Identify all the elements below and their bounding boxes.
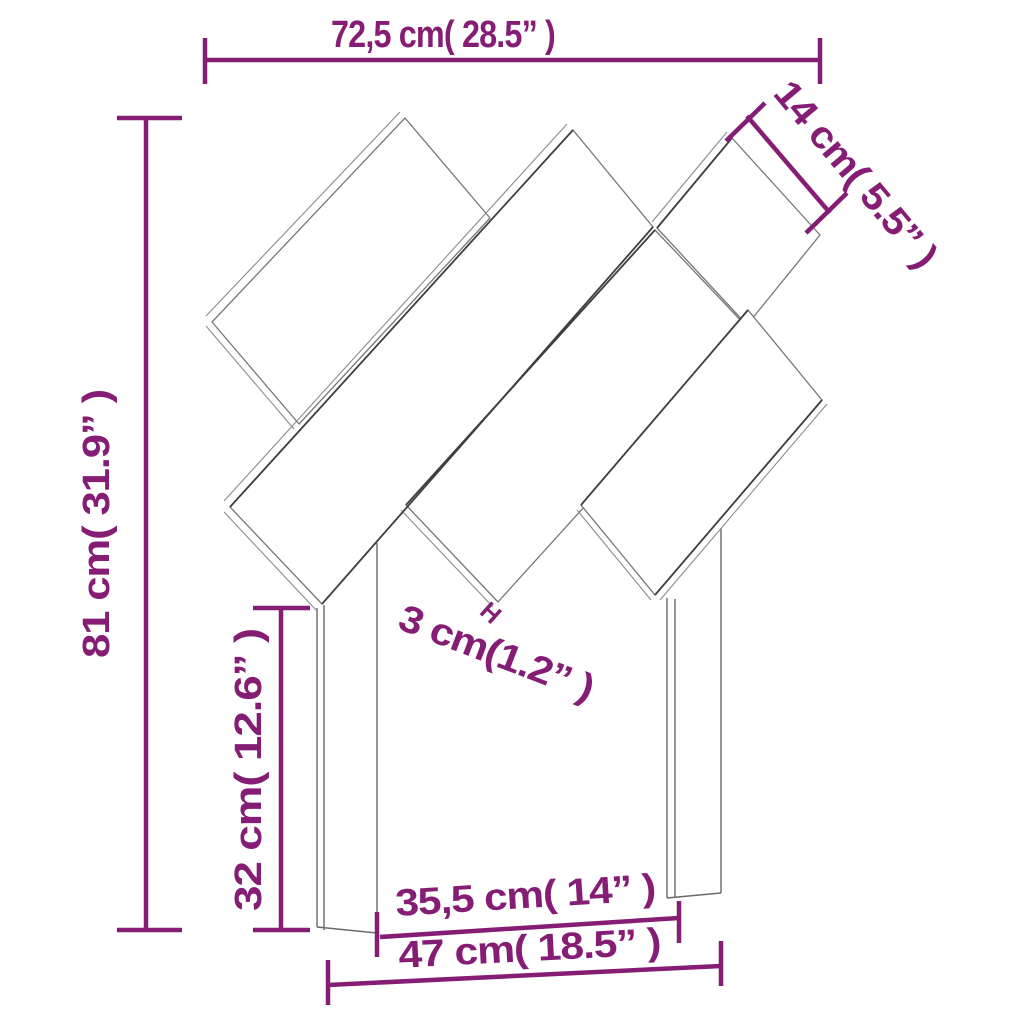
dim-overall-height-label: 81 cm( 31.9” ) [76, 390, 118, 658]
dim-overall-width-label: 72,5 cm( 28.5” ) [331, 14, 555, 56]
headboard-dimension-diagram: 72,5 cm( 28.5” ) 14 cm( 5.5” ) 81 cm( 31… [0, 0, 1024, 1024]
dimension-diagram-page: 72,5 cm( 28.5” ) 14 cm( 5.5” ) 81 cm( 31… [0, 0, 1024, 1024]
dim-leg-height-label: 32 cm( 12.6” ) [228, 629, 270, 911]
